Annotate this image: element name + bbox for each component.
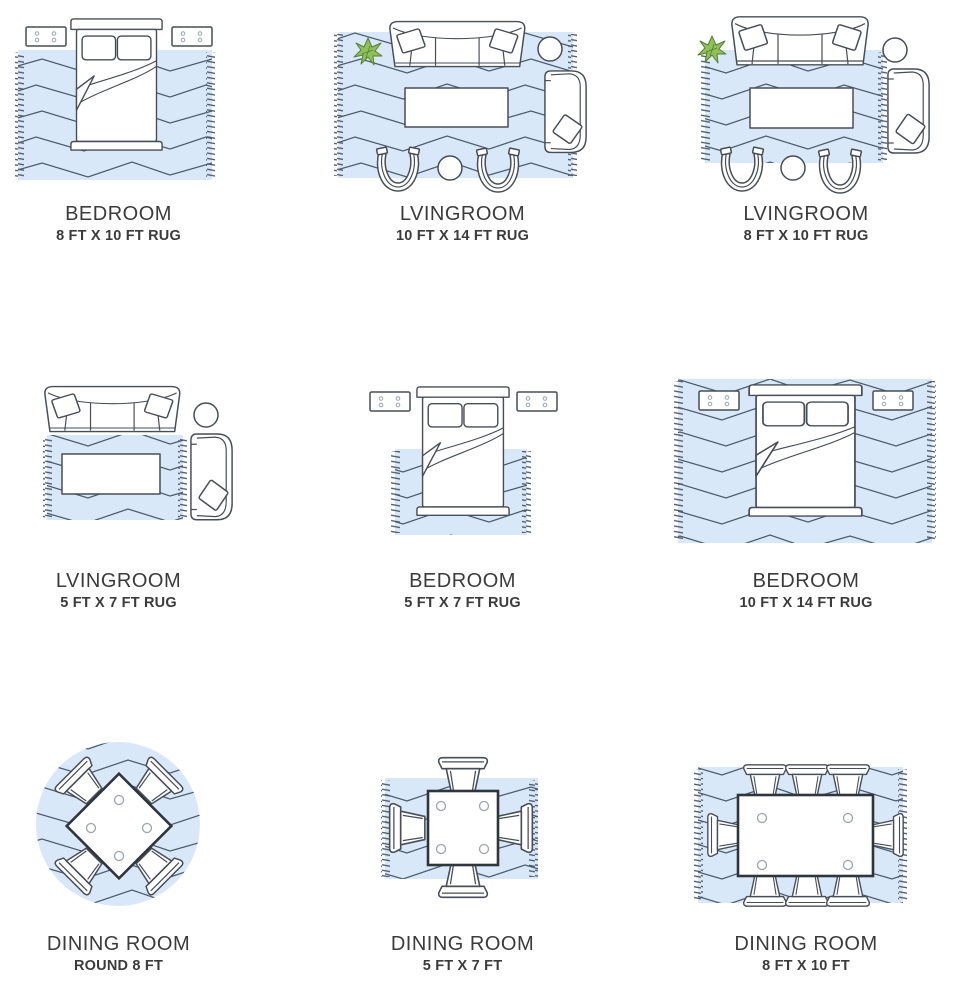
room-title: LVINGROOM [647,203,956,226]
bed-icon [749,385,862,516]
sofa-icon [390,22,525,67]
cell-bedroom-10x14: BEDROOM 10 FT X 14 FT RUG [638,330,956,660]
cell-bedroom-8x10: BEDROOM 8 FT X 10 FT RUG [0,0,319,330]
armchair-icon [888,69,929,153]
rug-size-label: 8 FT X 10 FT RUG [647,228,956,244]
dining-5x7-illustration [319,728,637,913]
livingroom-5x7-illustration [0,373,318,548]
cell-livingroom-10x14: LVINGROOM 10 FT X 14 FT RUG [319,0,638,330]
rug-size-label: 5 FT X 7 FT [303,958,622,974]
rug-size-label: 8 FT X 10 FT RUG [0,228,278,244]
rug-size-label: 5 FT X 7 FT RUG [0,595,278,611]
dining-round-8ft-illustration [0,728,318,913]
cell-livingroom-5x7: LVINGROOM 5 FT X 7 FT RUG [0,330,319,660]
nightstand-icon [873,391,913,410]
coffee-table-icon [405,88,508,127]
cell-bedroom-5x7: BEDROOM 5 FT X 7 FT RUG [319,330,638,660]
round-table-icon [438,156,462,180]
bedroom-10x14-illustration [638,373,956,548]
rug-size-label: 10 FT X 14 FT RUG [303,228,622,244]
livingroom-10x14-illustration [319,0,637,196]
side-table-icon [194,403,218,427]
room-title: DINING ROOM [0,933,278,956]
bed-icon [71,19,162,150]
figure-caption: LVINGROOM 10 FT X 14 FT RUG [303,203,622,244]
cell-dining-8x10: DINING ROOM 8 FT X 10 FT [638,660,956,990]
livingroom-8x10-illustration [638,0,956,196]
figure-caption: BEDROOM 10 FT X 14 FT RUG [647,570,956,611]
cell-livingroom-8x10: LVINGROOM 8 FT X 10 FT RUG [638,0,956,330]
figure-caption: LVINGROOM 5 FT X 7 FT RUG [0,570,278,611]
nightstand-icon [517,392,557,411]
round-table-icon [781,156,805,180]
dining-table-icon [738,795,873,876]
coffee-table-icon [750,88,853,128]
rug-size-label: 8 FT X 10 FT [647,958,956,974]
bed-icon [417,387,509,515]
nightstand-icon [26,27,66,46]
nightstand-icon [699,391,739,410]
nightstand-icon [370,392,410,411]
coffee-table-icon [62,454,160,494]
room-title: DINING ROOM [303,933,622,956]
room-title: BEDROOM [303,570,622,593]
room-title: LVINGROOM [303,203,622,226]
room-title: BEDROOM [0,203,278,226]
armchair-icon [191,434,232,520]
room-title: DINING ROOM [647,933,956,956]
room-title: LVINGROOM [0,570,278,593]
cell-dining-5x7: DINING ROOM 5 FT X 7 FT [319,660,638,990]
sofa-icon [732,17,868,65]
rug-size-label: 5 FT X 7 FT RUG [303,595,622,611]
figure-caption: DINING ROOM ROUND 8 FT [0,933,278,974]
figure-caption: BEDROOM 8 FT X 10 FT RUG [0,203,278,244]
dining-8x10-illustration [638,728,956,913]
bedroom-8x10-illustration [0,0,318,196]
bedroom-5x7-illustration [319,373,637,548]
rug-guide-grid: BEDROOM 8 FT X 10 FT RUG LVINGROOM 10 FT… [0,0,956,990]
figure-caption: BEDROOM 5 FT X 7 FT RUG [303,570,622,611]
nightstand-icon [172,27,212,46]
figure-caption: LVINGROOM 8 FT X 10 FT RUG [647,203,956,244]
side-table-icon [883,38,907,62]
armchair-icon [545,71,586,152]
cell-dining-round-8ft: DINING ROOM ROUND 8 FT [0,660,319,990]
rug-size-label: 10 FT X 14 FT RUG [647,595,956,611]
figure-caption: DINING ROOM 5 FT X 7 FT [303,933,622,974]
dining-table-icon [428,791,498,865]
sofa-icon [45,387,180,432]
rug-size-label: ROUND 8 FT [0,958,278,974]
side-table-icon [538,37,562,61]
figure-caption: DINING ROOM 8 FT X 10 FT [647,933,956,974]
room-title: BEDROOM [647,570,956,593]
